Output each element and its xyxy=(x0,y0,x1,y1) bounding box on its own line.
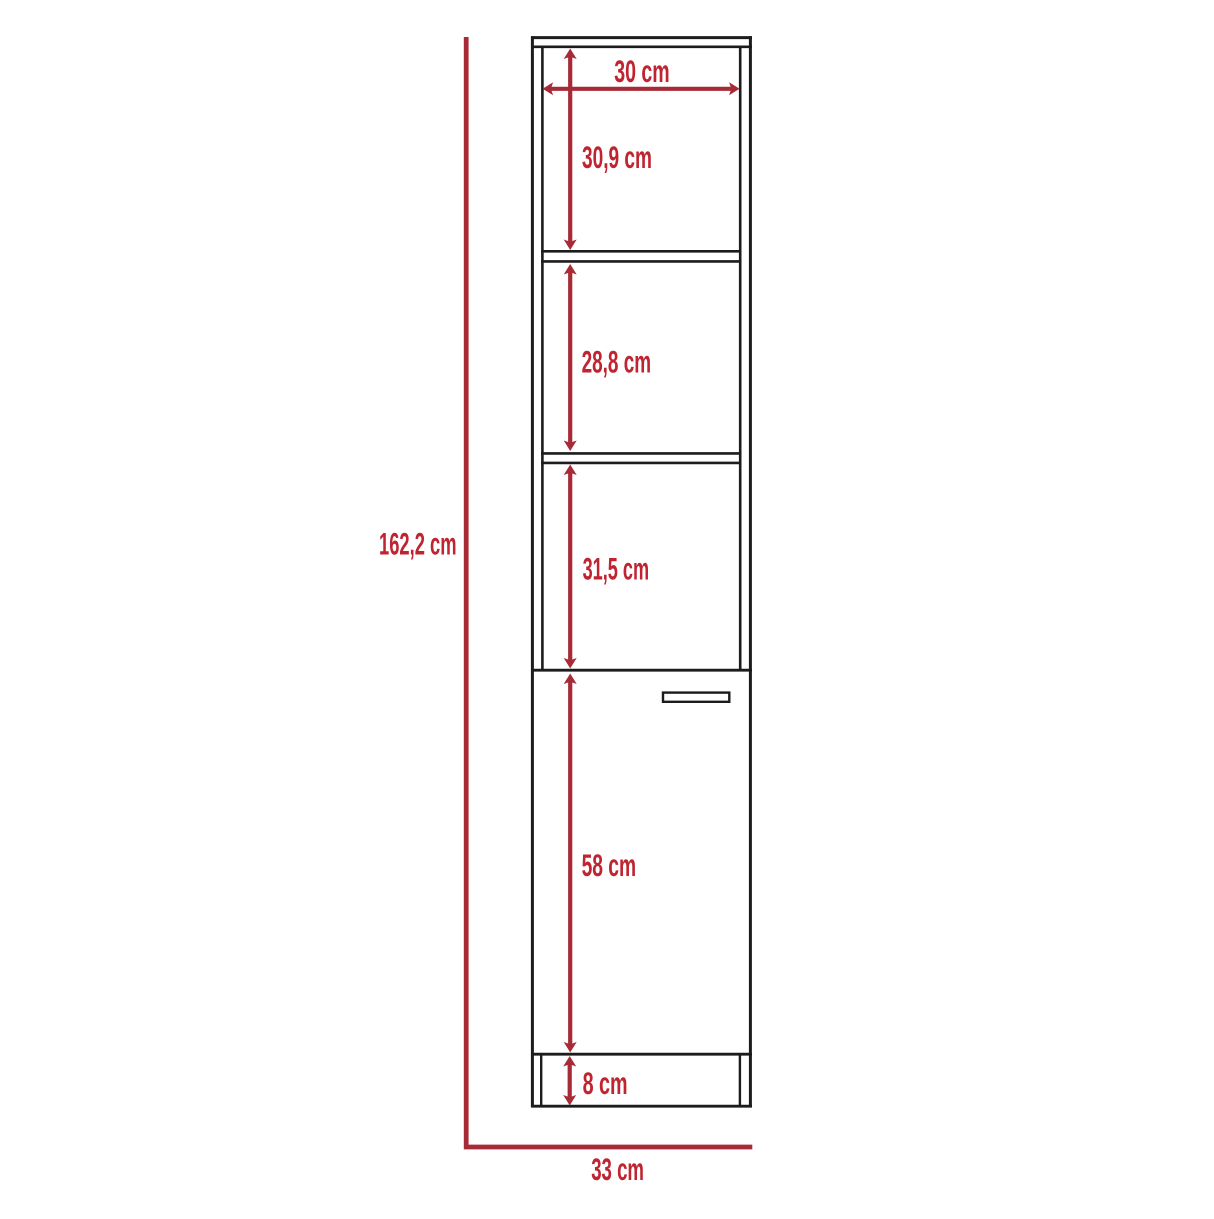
svg-text:31,5 cm: 31,5 cm xyxy=(583,551,650,587)
svg-text:30 cm: 30 cm xyxy=(614,53,670,89)
svg-text:58 cm: 58 cm xyxy=(582,847,637,883)
svg-text:8 cm: 8 cm xyxy=(583,1065,628,1101)
svg-text:30,9 cm: 30,9 cm xyxy=(582,139,652,175)
svg-text:28,8 cm: 28,8 cm xyxy=(582,344,652,380)
svg-text:162,2 cm: 162,2 cm xyxy=(379,526,457,562)
svg-text:33 cm: 33 cm xyxy=(591,1151,644,1187)
